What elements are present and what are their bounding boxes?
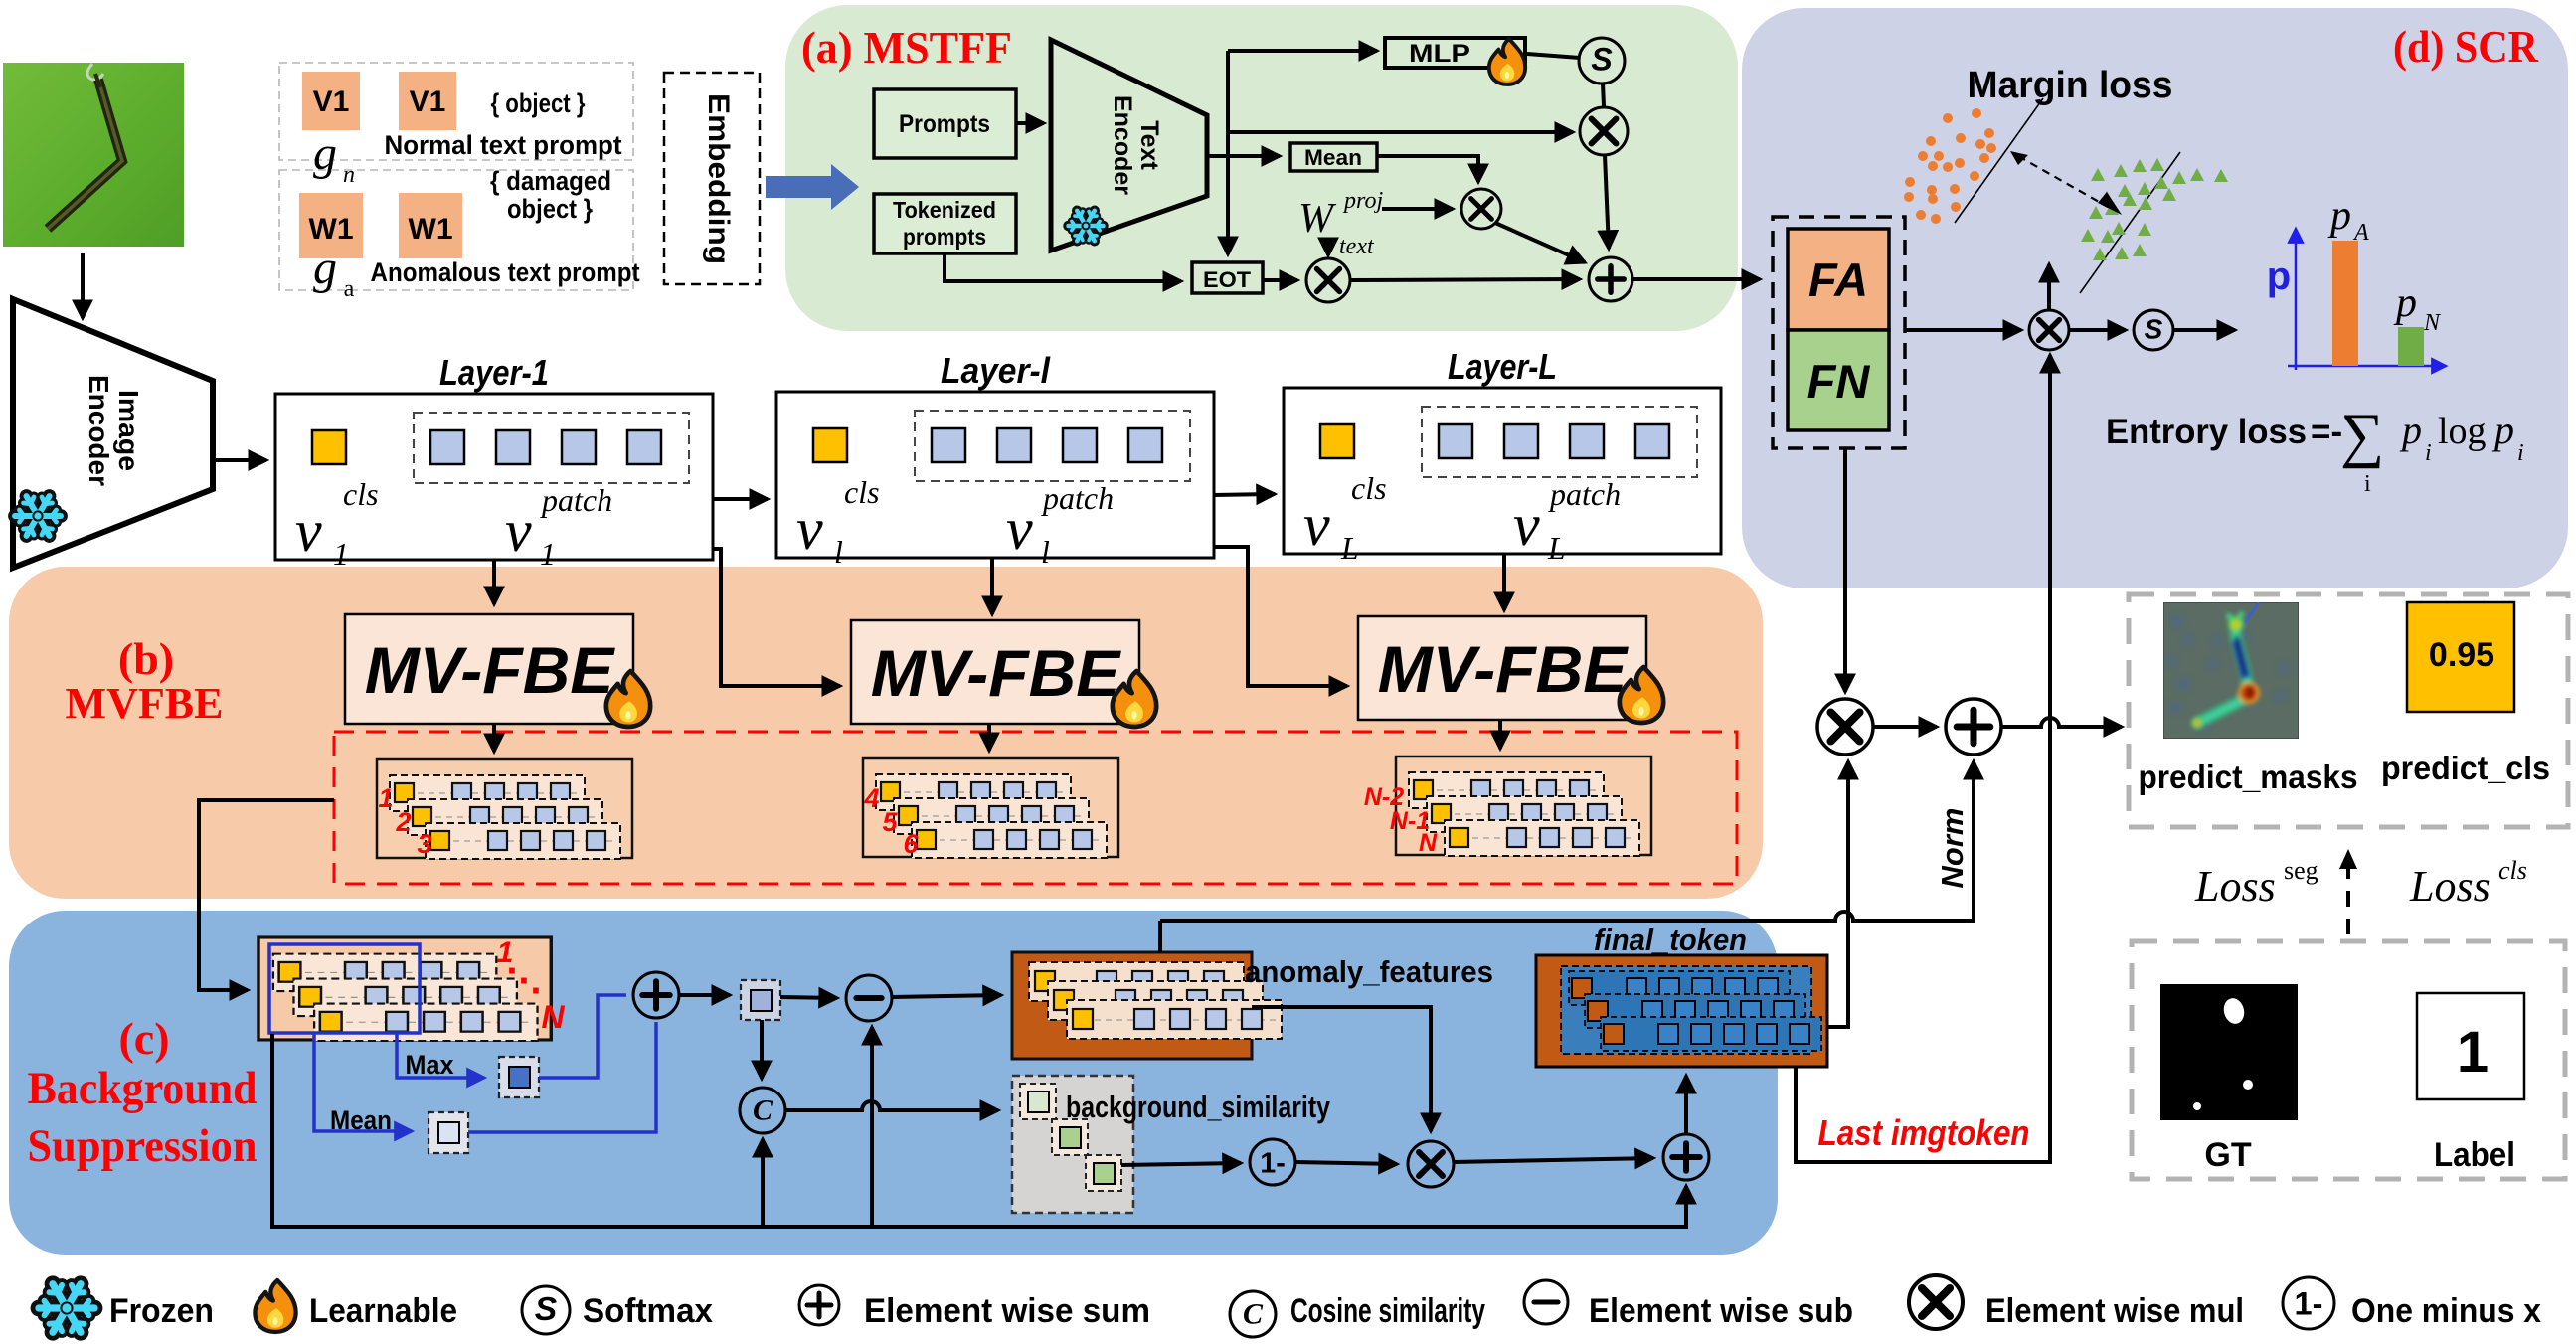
svg-text:v: v	[1303, 492, 1330, 558]
svg-text:W: W	[1298, 196, 1337, 242]
svg-text:Loss: Loss	[2194, 862, 2276, 911]
svg-text:Learnable: Learnable	[309, 1292, 457, 1330]
svg-text:Layer-l: Layer-l	[941, 350, 1051, 391]
svg-text:Tokenized: Tokenized	[893, 197, 996, 223]
svg-text:MVFBE: MVFBE	[66, 679, 224, 728]
svg-text:a: a	[344, 276, 355, 302]
svg-text:V1: V1	[313, 85, 350, 118]
svg-text:EOT: EOT	[1203, 267, 1252, 292]
svg-text:(a) MSTFF: (a) MSTFF	[801, 22, 1012, 73]
svg-text:v: v	[295, 498, 322, 564]
svg-text:W1: W1	[409, 213, 453, 246]
svg-text:Background: Background	[28, 1063, 258, 1114]
svg-text:Suppression: Suppression	[28, 1120, 258, 1172]
svg-text:(d) SCR: (d) SCR	[2393, 21, 2539, 72]
svg-text:Embedding: Embedding	[702, 93, 735, 264]
svg-text:Image: Image	[113, 390, 144, 471]
svg-text:Softmax: Softmax	[583, 1292, 713, 1330]
svg-text:Mean: Mean	[1304, 145, 1362, 170]
svg-text:(c): (c)	[118, 1013, 169, 1064]
svg-text:L: L	[1547, 530, 1566, 566]
svg-text:predict_cls: predict_cls	[2381, 750, 2550, 786]
svg-text:cls: cls	[343, 476, 379, 512]
svg-text:v: v	[1006, 496, 1033, 562]
svg-text:GT: GT	[2204, 1136, 2251, 1174]
svg-text:=-: =-	[2311, 413, 2342, 451]
svg-text:p: p	[2267, 254, 2291, 298]
svg-text:MV-FBE: MV-FBE	[365, 633, 616, 707]
svg-text:n: n	[343, 162, 355, 188]
svg-text:log: log	[2438, 411, 2487, 452]
svg-text:Element wise sub: Element wise sub	[1589, 1292, 1853, 1330]
svg-text:final_token: final_token	[1594, 923, 1747, 957]
svg-text:1: 1	[540, 536, 556, 572]
svg-text:N: N	[1419, 829, 1438, 857]
svg-text:Element wise sum: Element wise sum	[864, 1292, 1150, 1330]
svg-text:p: p	[2399, 408, 2422, 452]
svg-text:N: N	[541, 999, 565, 1035]
svg-text:p: p	[2491, 408, 2514, 452]
svg-text:3: 3	[417, 829, 431, 859]
svg-text:Layer-L: Layer-L	[1448, 346, 1557, 387]
svg-text:C: C	[1243, 1298, 1264, 1331]
svg-text:patch: patch	[540, 482, 612, 518]
svg-text:{ object }: { object }	[491, 88, 586, 118]
svg-text:(b): (b)	[118, 633, 174, 684]
svg-text:Entrory loss: Entrory loss	[2106, 413, 2307, 451]
svg-text:MV-FBE: MV-FBE	[871, 636, 1122, 710]
svg-text:Last imgtoken: Last imgtoken	[1818, 1112, 2030, 1153]
svg-text:cls: cls	[2498, 856, 2527, 885]
svg-text:2: 2	[395, 807, 411, 837]
svg-text:Encoder: Encoder	[84, 375, 114, 486]
svg-text:FN: FN	[1807, 355, 1871, 408]
svg-text:Norm: Norm	[1935, 808, 1970, 889]
svg-text:object }: object }	[507, 194, 593, 224]
svg-text:1: 1	[378, 783, 393, 813]
svg-text:S: S	[2145, 313, 2163, 344]
svg-text:v: v	[1513, 492, 1540, 558]
svg-text:6: 6	[903, 829, 919, 859]
svg-text:cls: cls	[844, 474, 880, 510]
svg-text:One minus x: One minus x	[2351, 1292, 2541, 1330]
svg-text:Anomalous text prompt: Anomalous text prompt	[371, 257, 640, 287]
svg-text:v: v	[505, 498, 532, 564]
svg-text:g: g	[313, 242, 337, 294]
svg-text:Cosine similarity: Cosine similarity	[1290, 1292, 1485, 1330]
svg-text:1: 1	[333, 536, 349, 572]
svg-text:{ damaged: { damaged	[490, 166, 611, 196]
svg-text:MV-FBE: MV-FBE	[1378, 632, 1630, 706]
svg-text:1-: 1-	[1260, 1147, 1286, 1179]
svg-text:l: l	[834, 534, 843, 570]
svg-text:predict_masks: predict_masks	[2139, 758, 2358, 795]
svg-text:N: N	[2423, 310, 2442, 336]
svg-text:i: i	[2364, 471, 2371, 497]
svg-text:Max: Max	[406, 1050, 454, 1080]
svg-text:0.95: 0.95	[2429, 636, 2494, 674]
svg-text:Element wise mul: Element wise mul	[1985, 1292, 2244, 1330]
svg-text:i: i	[2517, 440, 2524, 466]
svg-text:g: g	[313, 127, 337, 180]
svg-text:text: text	[1339, 234, 1375, 259]
svg-text:background_similarity: background_similarity	[1066, 1090, 1331, 1124]
svg-text:Text: Text	[1135, 120, 1163, 170]
svg-text:S: S	[1591, 42, 1613, 78]
svg-text:Mean: Mean	[330, 1105, 392, 1135]
svg-text:4: 4	[863, 783, 879, 813]
svg-text:Normal text prompt: Normal text prompt	[385, 130, 622, 160]
svg-text:cls: cls	[1351, 470, 1387, 506]
svg-text:anomaly_features: anomaly_features	[1245, 954, 1493, 989]
svg-text:1: 1	[2457, 1020, 2489, 1085]
svg-text:patch: patch	[1548, 476, 1621, 512]
svg-text:i: i	[2425, 440, 2432, 466]
svg-text:p: p	[2327, 193, 2351, 239]
svg-text:v: v	[796, 496, 823, 562]
svg-text:1-: 1-	[2295, 1286, 2323, 1322]
svg-text:C: C	[753, 1094, 773, 1127]
svg-text:Layer-1: Layer-1	[439, 352, 549, 393]
svg-text:5: 5	[882, 807, 898, 837]
svg-text:Margin loss: Margin loss	[1968, 65, 2173, 106]
svg-text:MLP: MLP	[1409, 40, 1470, 68]
svg-text:∑: ∑	[2340, 402, 2384, 469]
svg-text:L: L	[1340, 530, 1359, 566]
svg-text:l: l	[1041, 534, 1050, 570]
svg-text:FA: FA	[1808, 253, 1868, 306]
svg-text:patch: patch	[1041, 480, 1114, 516]
svg-text:Prompts: Prompts	[899, 110, 990, 138]
svg-text:proj: proj	[1342, 188, 1383, 214]
svg-text:Label: Label	[2434, 1136, 2515, 1174]
svg-text:Frozen: Frozen	[109, 1292, 214, 1330]
svg-text:Encoder: Encoder	[1109, 95, 1136, 195]
svg-text:p: p	[2393, 280, 2417, 326]
svg-text:V1: V1	[410, 85, 446, 118]
svg-text:A: A	[2352, 220, 2369, 246]
svg-text:prompts: prompts	[903, 224, 986, 250]
svg-text:seg: seg	[2284, 856, 2318, 885]
svg-text:S: S	[535, 1291, 558, 1328]
svg-text:Loss: Loss	[2409, 862, 2490, 911]
